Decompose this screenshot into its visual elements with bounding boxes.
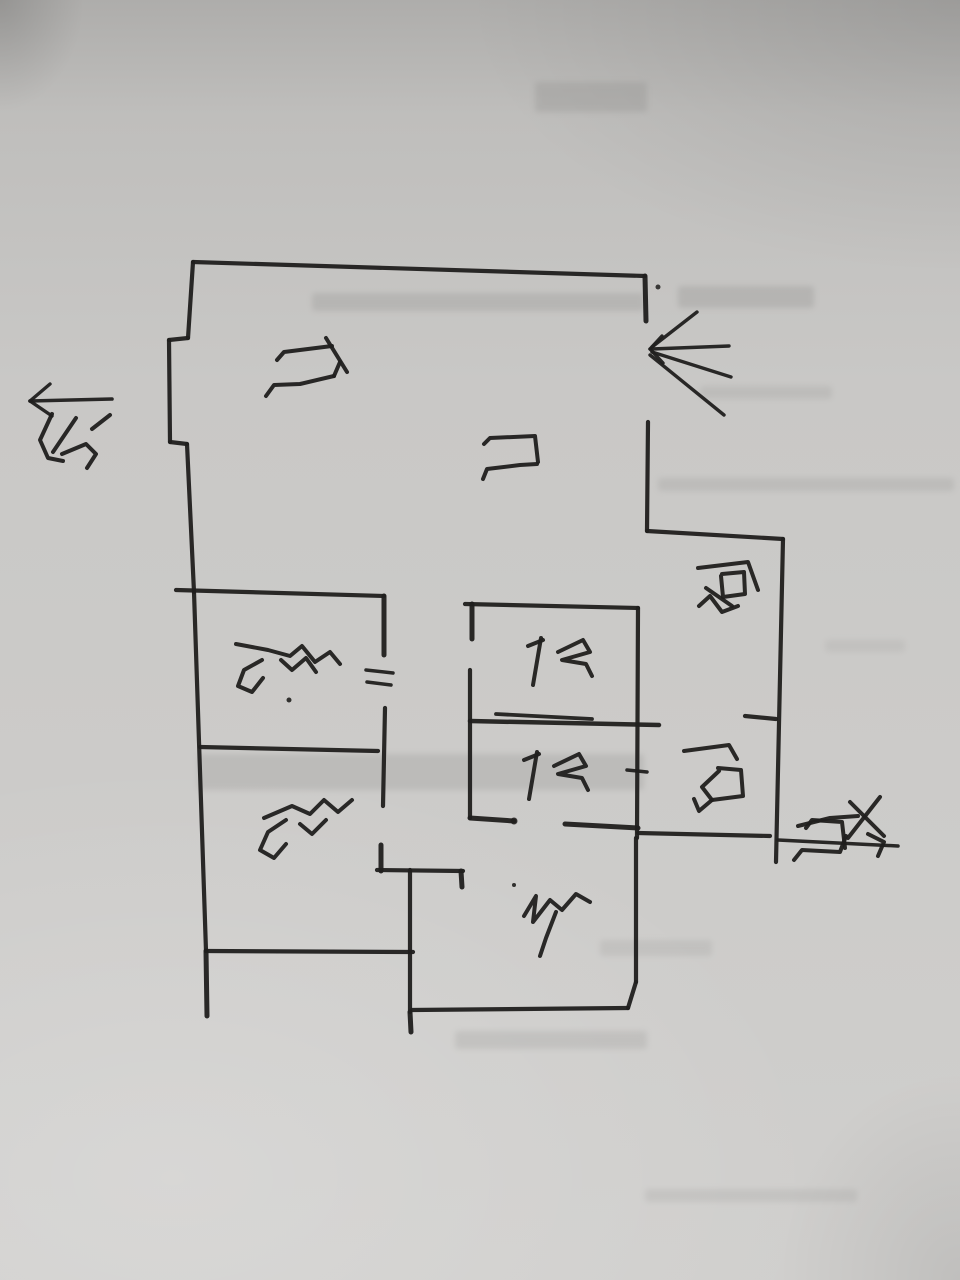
label-bathroom-2	[524, 752, 588, 799]
wall-segment	[187, 444, 194, 592]
label-second-bedroom	[260, 800, 352, 858]
ink-blob	[656, 285, 661, 290]
wall-segment	[206, 951, 413, 952]
wall-segment	[194, 592, 206, 951]
wall-segment	[170, 442, 187, 444]
entry-door-swing-icon	[650, 312, 731, 415]
label-bedroom-3	[512, 883, 590, 956]
wall-segment	[176, 590, 384, 596]
north-arrow-shaft	[30, 399, 112, 401]
wall-segment	[776, 539, 783, 862]
label-opposite-door	[794, 797, 884, 860]
wall-segment	[412, 1008, 628, 1010]
label-bathroom-1	[528, 638, 592, 685]
wall-segment	[745, 716, 776, 719]
wall-segment	[169, 340, 170, 442]
wall-segment	[638, 833, 770, 836]
wall-segment	[193, 262, 645, 276]
wall-segment	[366, 670, 393, 673]
north-arrow-head	[30, 401, 52, 416]
label-kitchen	[698, 562, 758, 612]
floorplan-drawing	[0, 0, 960, 1280]
wall-segment	[645, 276, 646, 321]
label-north	[40, 414, 110, 468]
wall-segment	[383, 708, 385, 806]
wall-segment	[188, 262, 193, 338]
wall-segment	[377, 870, 463, 871]
handwritten-labels	[40, 338, 884, 956]
wall-segment	[465, 604, 638, 608]
floorplan-photo	[0, 0, 960, 1280]
wall-segment	[496, 714, 592, 719]
door-swing-line	[652, 346, 729, 349]
wall-segment	[647, 531, 783, 539]
ink-blob	[511, 818, 518, 825]
wall-segment	[627, 770, 647, 772]
label-balcony	[684, 745, 743, 811]
wall-segment	[470, 721, 659, 725]
wall-segment	[461, 871, 462, 887]
wall-segment	[647, 422, 648, 531]
wall-segment	[628, 982, 636, 1008]
wall-segment	[637, 608, 638, 838]
wall-segment	[367, 682, 391, 685]
wall-segment	[470, 818, 514, 821]
wall-segment	[169, 338, 188, 340]
wall-segment	[206, 951, 207, 1016]
north-arrow-head	[30, 384, 50, 401]
label-master-bedroom	[236, 644, 340, 703]
label-living-room	[266, 338, 347, 396]
wall-segment	[410, 1012, 411, 1032]
wall-segment	[200, 747, 378, 751]
wall-segment	[565, 824, 638, 828]
north-arrow-icon	[30, 384, 112, 416]
label-entry-door	[483, 436, 538, 479]
